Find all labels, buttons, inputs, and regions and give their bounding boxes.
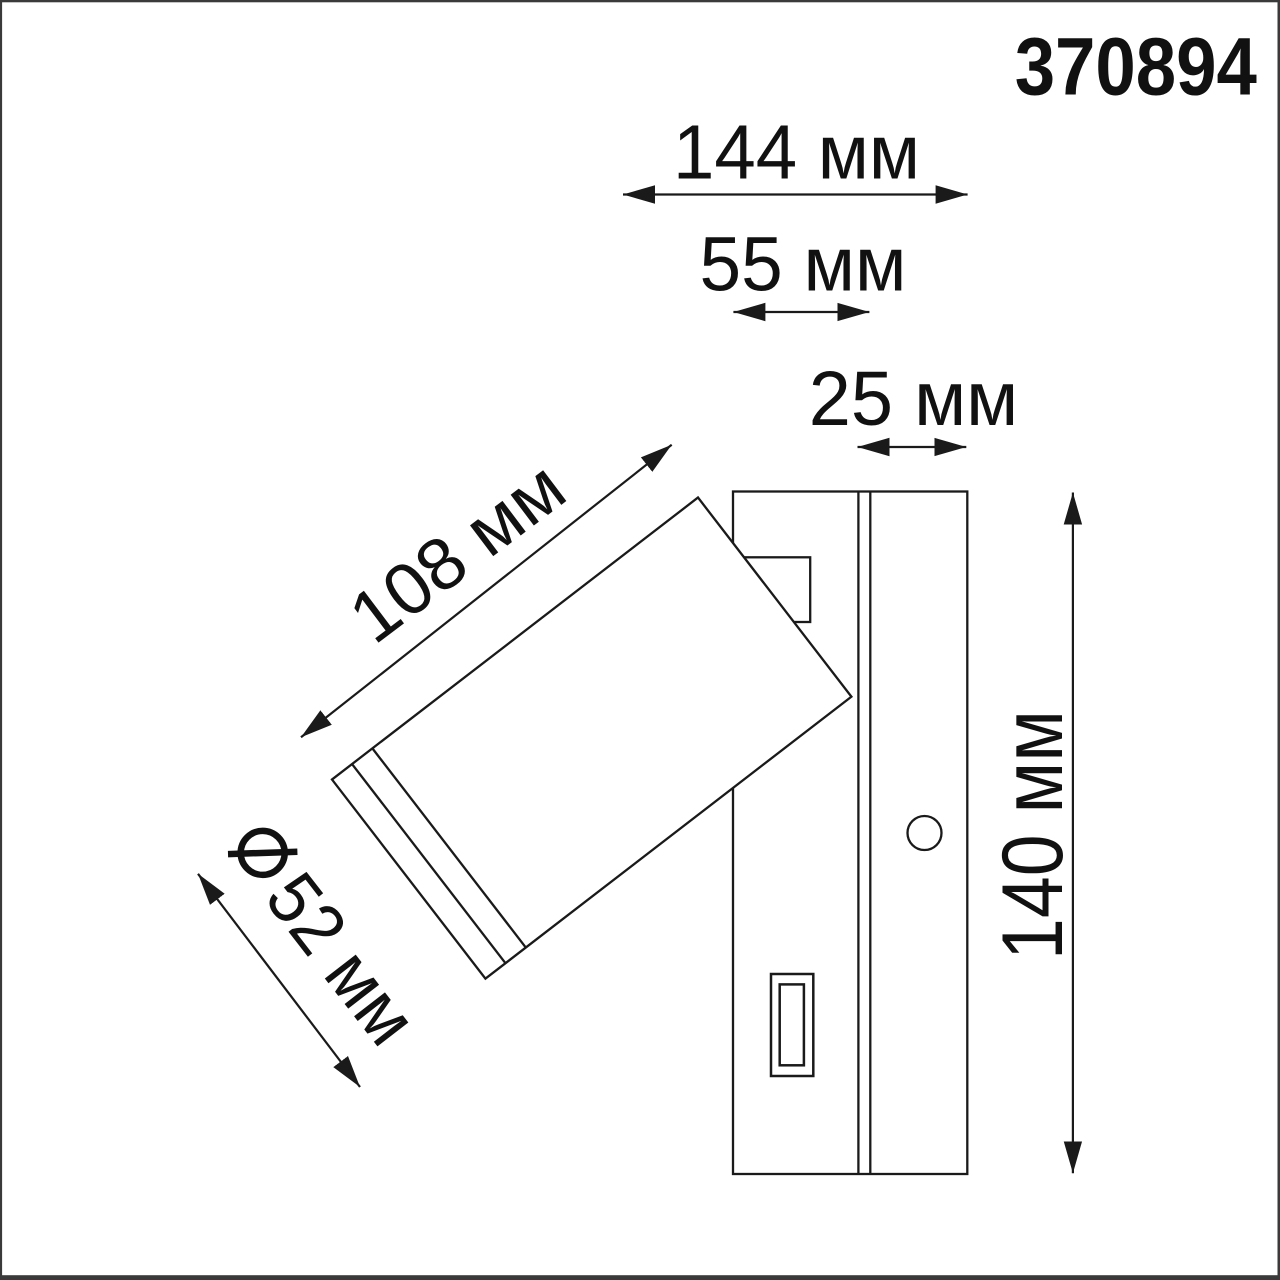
svg-text:370894: 370894 xyxy=(1015,22,1258,113)
svg-text:140 мм: 140 мм xyxy=(985,710,1081,960)
svg-text:25 мм: 25 мм xyxy=(809,356,1019,442)
svg-text:55 мм: 55 мм xyxy=(700,221,907,307)
svg-text:144 мм: 144 мм xyxy=(673,110,920,196)
